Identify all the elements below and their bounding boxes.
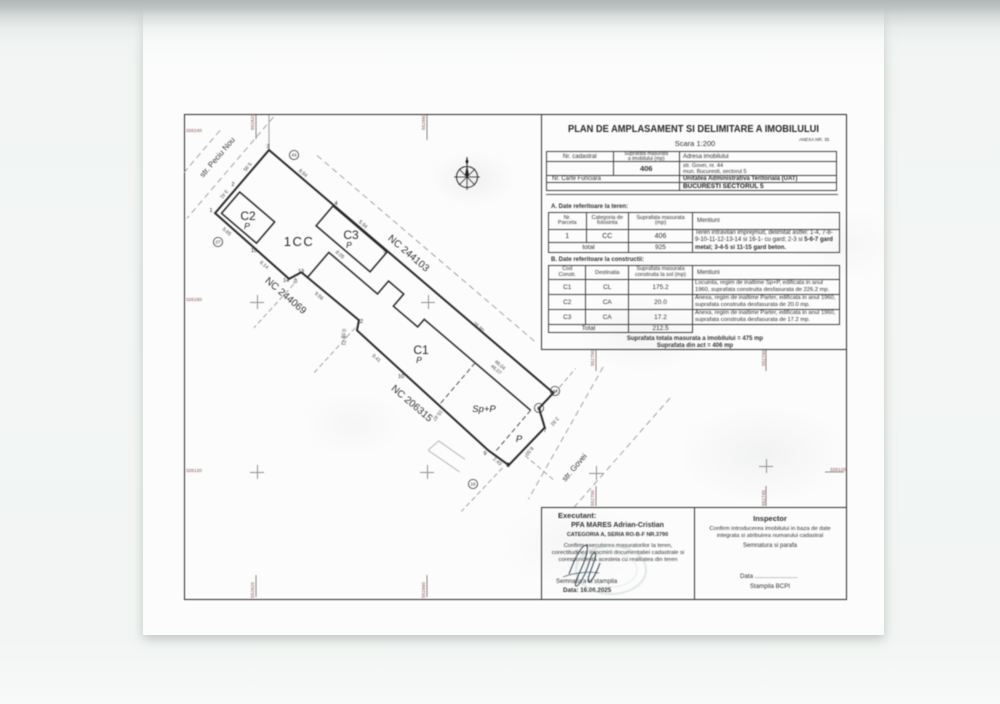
- svg-text:2.92: 2.92: [549, 415, 560, 426]
- svg-text:3: 3: [266, 144, 269, 150]
- svg-text:P: P: [516, 434, 523, 445]
- svg-text:2.43: 2.43: [491, 456, 502, 467]
- svg-text:str. Govei: str. Govei: [560, 452, 589, 484]
- svg-text:11: 11: [537, 406, 542, 411]
- svg-text:5.65: 5.65: [221, 227, 232, 238]
- svg-text:9: 9: [483, 451, 486, 457]
- svg-text:5: 5: [383, 249, 386, 255]
- svg-text:12: 12: [357, 319, 363, 325]
- svg-text:8.94: 8.94: [297, 168, 308, 179]
- svg-text:7: 7: [543, 428, 546, 434]
- svg-text:6.14: 6.14: [258, 260, 269, 271]
- svg-text:str. Peciu Nou: str. Peciu Nou: [198, 135, 237, 179]
- svg-text:27: 27: [215, 240, 221, 245]
- svg-text:NC 206315: NC 206315: [389, 383, 435, 425]
- svg-text:9.41: 9.41: [370, 353, 381, 364]
- svg-text:15: 15: [251, 248, 257, 254]
- svg-text:13: 13: [298, 269, 304, 275]
- svg-text:Sp+P: Sp+P: [472, 404, 496, 415]
- svg-text:P: P: [346, 240, 352, 250]
- svg-text:2: 2: [231, 182, 234, 188]
- svg-text:4: 4: [334, 201, 337, 207]
- svg-text:10: 10: [398, 374, 404, 380]
- svg-text:14: 14: [283, 278, 289, 284]
- svg-text:44: 44: [552, 389, 558, 394]
- svg-text:P: P: [244, 221, 250, 231]
- svg-text:44: 44: [291, 153, 297, 158]
- svg-text:16: 16: [470, 482, 476, 487]
- svg-text:1: 1: [209, 208, 212, 214]
- svg-text:9.56: 9.56: [313, 291, 324, 302]
- svg-text:1CC: 1CC: [284, 234, 315, 249]
- svg-text:P: P: [416, 355, 422, 365]
